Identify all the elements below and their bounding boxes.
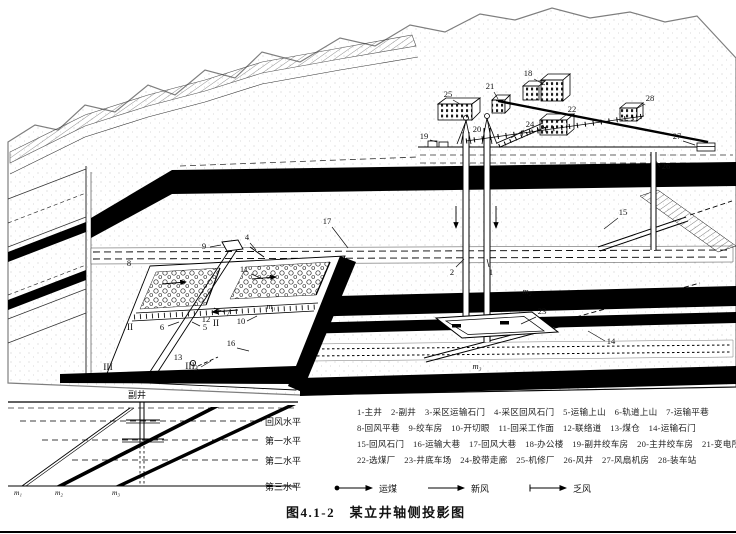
- svg-text:II: II: [213, 319, 219, 329]
- return-air-main-roadway: [91, 246, 733, 264]
- svg-text:26: 26: [662, 161, 671, 171]
- flow-legend-symbols: [335, 485, 566, 492]
- inset-level-third: 第三水平: [265, 480, 301, 493]
- inset-seam-m3: m₃: [112, 488, 120, 497]
- svg-text:19: 19: [420, 131, 429, 141]
- coal-flow-symbol: [335, 486, 372, 490]
- flow-label-fresh-air: 新风: [471, 482, 489, 495]
- svg-text:25: 25: [444, 89, 453, 99]
- terrain-block: [8, 8, 736, 395]
- svg-text:7: 7: [226, 308, 230, 318]
- svg-text:9: 9: [202, 241, 206, 251]
- inset-level-first: 第一水平: [265, 434, 301, 447]
- ventilation-shaft: [651, 152, 656, 250]
- svg-text:14: 14: [607, 336, 616, 346]
- legend-row-1: 1-主井 2-副井 3-采区运输石门 4-采区回风石门 5-运输上山 6-轨道上…: [357, 406, 709, 418]
- inset-level-return: 回风水平: [265, 415, 301, 428]
- svg-text:18: 18: [524, 68, 533, 78]
- svg-text:1: 1: [489, 267, 493, 277]
- svg-text:III: III: [103, 363, 113, 373]
- svg-text:II: II: [127, 323, 133, 333]
- svg-text:24: 24: [526, 119, 535, 129]
- svg-text:27: 27: [673, 131, 682, 141]
- svg-text:m₁: m₁: [266, 301, 275, 311]
- svg-text:III: III: [185, 362, 195, 372]
- inset-shaft-label: 副井: [128, 388, 146, 401]
- svg-text:20: 20: [473, 124, 482, 134]
- return-air-symbol: [530, 485, 566, 492]
- legend-row-2: 8-回风平巷 9-绞车房 10-开切眼 11-回采工作面 12-联络道 13-煤…: [357, 422, 696, 434]
- legend-row-3: 15-回风石门 16-运输大巷 17-回风大巷 18-办公楼 19-副井绞车房 …: [357, 438, 736, 450]
- inset-level-second: 第二水平: [265, 454, 301, 467]
- svg-text:22: 22: [568, 104, 577, 114]
- building-repair-shop: [438, 98, 480, 120]
- svg-text:21: 21: [486, 81, 495, 91]
- svg-text:10: 10: [237, 316, 246, 326]
- flow-label-return-air: 乏风: [573, 482, 591, 495]
- legend-row-4: 22-选煤厂 23-井底车场 24-胶带走廊 25-机修厂 26-风井 27-风…: [357, 454, 696, 466]
- svg-text:13: 13: [174, 352, 183, 362]
- figure-caption: 图4.1-2 某立井轴侧投影图: [286, 502, 466, 521]
- figure-projection-diagram: 1234567891011121314151617181920212223242…: [0, 0, 736, 534]
- flow-label-coal: 运煤: [379, 482, 397, 495]
- auxiliary-shaft: [463, 132, 469, 336]
- svg-text:23: 23: [538, 306, 547, 316]
- svg-text:16: 16: [227, 338, 236, 348]
- bottom-border-line: [0, 531, 736, 533]
- svg-text:m₂: m₂: [522, 286, 531, 296]
- main-shaft: [484, 128, 490, 342]
- svg-text:m₃: m₃: [472, 361, 481, 371]
- inset-seam-m1: m₁: [14, 488, 22, 497]
- building-loading-station: [620, 103, 643, 121]
- building-fan-house: [697, 143, 715, 151]
- svg-text:15: 15: [619, 207, 628, 217]
- svg-text:28: 28: [646, 93, 655, 103]
- svg-text:8: 8: [127, 258, 131, 268]
- svg-text:12: 12: [202, 314, 211, 324]
- svg-text:6: 6: [160, 322, 164, 332]
- svg-text:2: 2: [450, 267, 454, 277]
- svg-text:11: 11: [240, 264, 248, 274]
- svg-text:17: 17: [323, 216, 332, 226]
- cross-section-inset: [8, 402, 298, 486]
- inset-seam-m2: m₂: [55, 488, 63, 497]
